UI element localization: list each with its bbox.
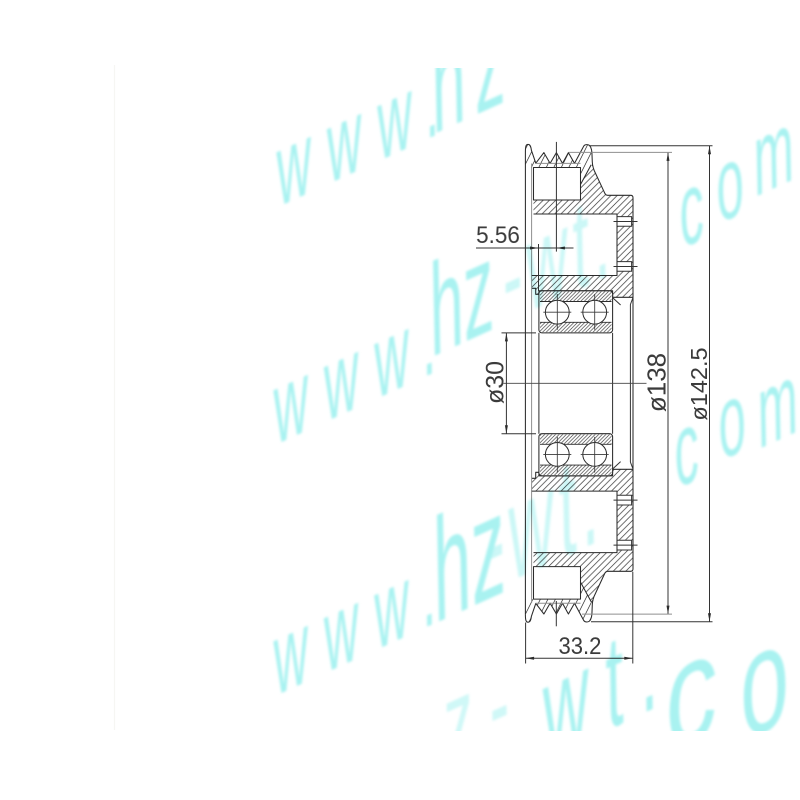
svg-text:ø30: ø30 [482, 361, 510, 404]
svg-text:ø138: ø138 [642, 353, 672, 412]
